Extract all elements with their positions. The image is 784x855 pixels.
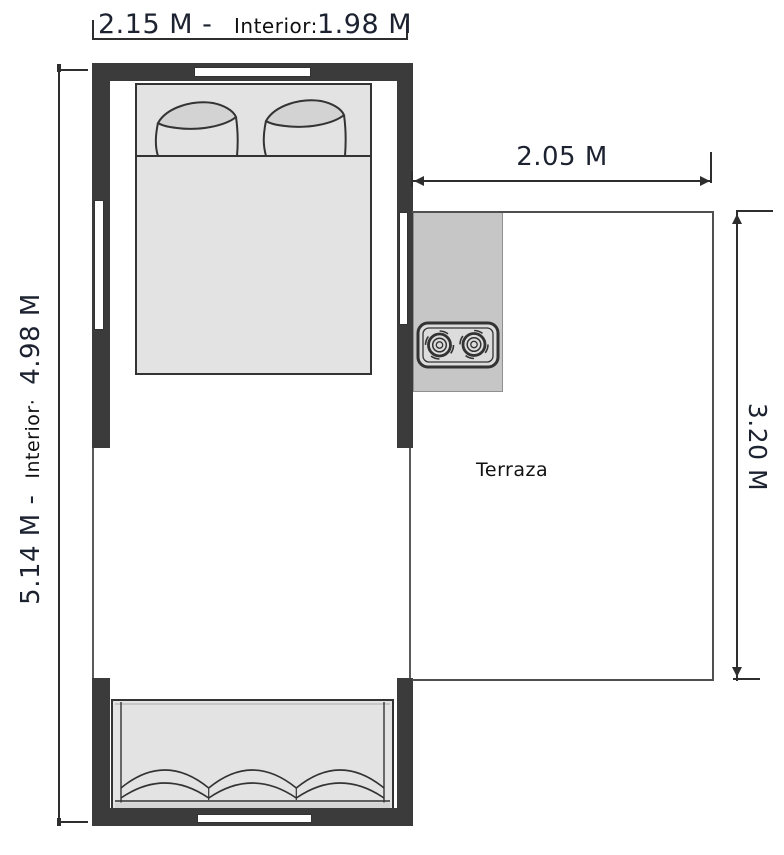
bed bbox=[135, 83, 372, 375]
dim-terrace-height: 3.20 M bbox=[742, 347, 772, 547]
glass-wall-right bbox=[409, 448, 411, 679]
dim-arrow-left-icon bbox=[414, 176, 424, 186]
wall-right-lower bbox=[397, 678, 413, 826]
sofa-svg bbox=[113, 701, 392, 811]
window-bottom bbox=[197, 814, 312, 823]
dim-left-interior-value: 4.98 M bbox=[16, 293, 46, 385]
dim-left-interior-label: Interior· bbox=[22, 399, 44, 479]
bed-svg bbox=[137, 85, 370, 373]
terrace-edge-top bbox=[412, 211, 714, 213]
dim-terrace-width-line bbox=[412, 180, 712, 182]
stove-svg bbox=[416, 321, 500, 369]
terrace-label: Terraza bbox=[476, 459, 548, 481]
terrace-edge-bottom bbox=[412, 679, 714, 681]
wall-left-lower bbox=[92, 678, 110, 826]
dim-top-overall: 2.15 M - bbox=[98, 9, 212, 40]
window-left bbox=[94, 200, 104, 330]
dim-left-overall: 5.14 M - bbox=[16, 495, 46, 605]
dim-left-tick-bottom bbox=[58, 821, 88, 823]
dim-top-interior-value: 1.98 M bbox=[317, 9, 412, 40]
dim-terrace-width: 2.05 M bbox=[512, 142, 612, 172]
dim-top-tick-left bbox=[92, 20, 94, 40]
pillow-icon bbox=[264, 100, 346, 156]
floor-plan: 2.15 M - Interior: 1.98 M 5.14 M - Inter… bbox=[0, 0, 784, 855]
window-right bbox=[399, 212, 408, 325]
dim-arrow-right-icon bbox=[700, 176, 710, 186]
glass-wall-left bbox=[92, 448, 94, 679]
dim-terrace-width-tick-right bbox=[710, 152, 712, 183]
dim-terrace-height-tick-top bbox=[736, 210, 773, 212]
sofa bbox=[111, 699, 394, 813]
dim-left-text: 5.14 M - Interior· 4.98 M bbox=[16, 269, 50, 629]
dim-left-line bbox=[58, 70, 60, 823]
dim-left-end-mark-top bbox=[57, 64, 61, 72]
stove bbox=[416, 321, 500, 369]
dim-terrace-height-line bbox=[736, 212, 738, 681]
dim-left-end-mark-bottom bbox=[57, 818, 61, 826]
pillow-icon bbox=[156, 102, 238, 156]
terrace-edge-right bbox=[712, 211, 714, 681]
dim-terrace-height-tick-bottom bbox=[733, 678, 760, 680]
dim-arrow-up-icon bbox=[732, 214, 742, 224]
dim-top-interior-label: Interior: bbox=[234, 14, 318, 38]
window-top bbox=[194, 67, 311, 77]
dim-arrow-down-icon bbox=[732, 667, 742, 677]
sofa-cushions bbox=[121, 770, 384, 800]
dim-terrace-width-tick-left bbox=[411, 171, 413, 187]
dim-left-tick-top bbox=[58, 69, 88, 71]
